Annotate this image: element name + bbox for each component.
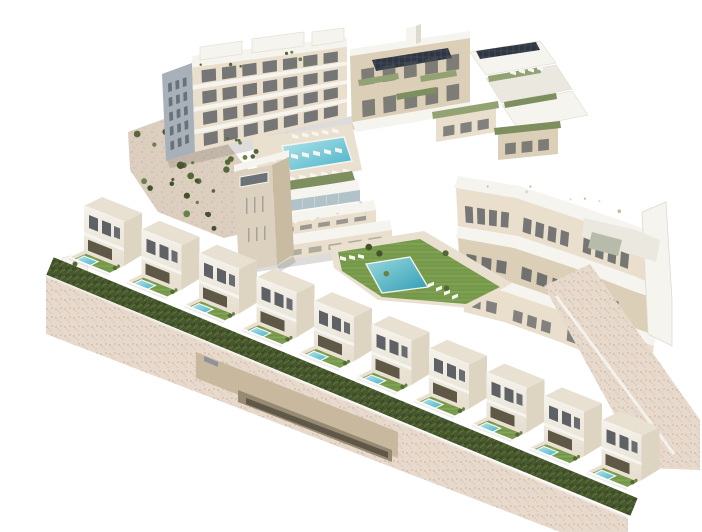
yard-plant-1 [228,313,232,317]
yard-plant-1 [170,290,174,294]
yard-plant-2 [117,265,120,268]
mid-block-windows-item [362,99,375,118]
roof-terrace-plants-item [295,63,297,65]
roof-terrace-plants-item [285,52,288,55]
terrace-furniture-2-item [354,206,357,209]
wing-upper-windows-b-item [560,230,569,247]
yard-plant-2 [462,407,465,410]
glass-mullions-item [302,198,303,208]
townhouse-side-wall [182,237,200,290]
yard-plant-1 [630,480,634,484]
townhouse-side-wall [584,403,602,456]
deck-palms-item [251,154,256,159]
wing-upper-windows-a-item [477,208,485,225]
nw-block-windows-item [202,68,217,82]
mid-block-windows-item [425,57,438,75]
yard-plant-2 [290,336,293,339]
gable-windows-item [169,111,173,121]
hillside-shrubs-item [223,166,229,172]
yard-plant-1 [515,432,519,436]
wing-penthouse-windows-1-item [460,122,471,134]
roof-terrace-plants-item [229,63,232,66]
architectural-render: Aerial 3D rendering of a Mediterranean r… [0,0,702,532]
gable-windows-item [178,137,182,147]
hillside-shrubs-item [170,181,175,186]
gable-windows-item [183,77,187,87]
gable-windows-item [184,120,188,130]
roof-terrace-plants-item [239,65,242,68]
glass-mullions-item [326,195,327,205]
townhouse-side-wall [412,332,430,385]
hillside-shrubs-item [212,189,216,193]
nw-block-windows-item [324,51,338,64]
render-canvas [0,0,702,532]
wing-upper-windows-b-item [535,222,544,239]
wing-upper-windows-a-item [489,210,497,227]
gable-windows-item [177,123,181,133]
hillside-shrubs-item [195,179,199,183]
townhouse-side-wall [527,380,545,433]
hillside-shrubs-item [184,193,190,199]
yard-plant-2 [520,431,523,434]
gable-windows-item [170,140,174,150]
glass-mullions-item [314,197,315,207]
roof-terrace-plants-item [200,63,202,65]
nw-block-windows-item [263,60,278,73]
rooftop-chimney [406,26,416,46]
garden-palms-item [366,244,373,251]
terrace-furniture-2-item [364,212,367,215]
terrace-furniture-item [570,198,572,200]
nw-block-windows-item [222,86,237,100]
terrace-furniture-item [598,200,600,202]
terrace-furniture-item [529,186,531,188]
garden-palms-item [443,250,449,256]
townhouse-side-wall [469,356,487,409]
townhouse-side-wall [354,308,372,361]
terrace-furniture-item [584,198,586,200]
yard-plant-2 [347,360,350,363]
hillside-shrubs-item [212,226,217,231]
townhouse-1 [69,197,142,276]
rooftop-chimney-side [416,24,421,44]
gable-windows-item [176,94,180,104]
wing-upper-windows-a-item [465,206,473,224]
hillside-shrubs-item [152,143,156,147]
gable-windows-item [168,82,172,92]
yard-plant-1 [285,337,289,341]
deck-palms-item [254,149,259,154]
wing-penthouse-windows-2-item [505,142,516,154]
hillside-shrubs-item [196,201,199,204]
yard-plant-1 [573,456,577,460]
wing-penthouse-windows-1-item [478,119,489,131]
nw-block-windows-item [202,89,217,104]
terrace-furniture-2-item [369,207,372,210]
terrace-furniture-2-item [336,213,338,215]
hillside-shrubs-item [171,178,174,181]
garden-palms-item [376,250,382,256]
yard-plant-1 [113,266,117,270]
hillside-shrubs-item [183,210,190,217]
wing-penthouse-windows-2-item [538,139,549,151]
roof-terrace-plants-item [298,57,302,61]
terrace-furniture-2-item [359,201,362,204]
balcony-plants-item [238,139,241,142]
mid-block-windows-item [383,95,396,114]
wing-upper-windows-c-item [620,251,629,269]
wing-upper-windows-a-item [501,212,509,228]
townhouse-side-wall [124,213,142,266]
hillside-shrubs-item [205,212,209,216]
gable-windows-item [170,126,174,136]
yard-plant-2 [635,479,638,482]
townhouse-side-wall [297,284,315,337]
balcony-plants-item [235,139,238,142]
glass-mullions-item [338,193,339,203]
yard-plant-2 [232,312,235,315]
yard-plant-2 [577,455,580,458]
terrace-furniture-2-item [316,217,318,219]
nw-block-windows-item [242,63,257,77]
gable-windows-item [185,134,189,144]
gable-windows-item [169,97,173,107]
wing-upper-windows-b-item [547,226,556,243]
gable-windows-item [184,106,188,116]
hillside-shrubs-item [147,185,153,191]
gable-windows-item [183,92,187,102]
townhouse-side-wall [239,261,257,314]
gable-windows-item [175,80,179,90]
nw-block-windows-item [303,54,317,67]
mid-block-windows-item [446,54,459,72]
terrace-furniture-2-item [310,217,313,220]
yard-plant-1 [343,361,347,365]
wing-upper-windows-b-item [523,218,532,235]
hillside-shrubs-item [141,178,147,184]
wing-mid-windows-a-item [496,260,507,274]
elevator-slit-windows-2-item [264,226,266,240]
gable-windows-item [177,109,181,119]
terrace-furniture-item [525,190,528,193]
townhouse-side-wall [642,427,660,480]
terrace-furniture-item [487,186,489,188]
garden-palms-item [444,285,450,291]
balcony-plants-item [226,137,229,140]
yard-plant-1 [458,409,462,413]
hillside-shrubs-item [243,155,248,160]
yard-plant-2 [175,288,178,291]
elevator-slit-windows-2-item [248,228,250,242]
elevator-slit-windows-1-item [262,196,264,212]
terrace-furniture-item [618,209,622,213]
elevator-slit-windows-1-item [254,197,256,213]
wing-penthouse-windows-2-item [522,141,533,153]
hillside-shrubs-item [134,131,141,138]
hillside-shrubs-item [225,159,231,165]
terrace-furniture-2-item [294,221,297,224]
wing-penthouse-windows-1-item [443,125,454,137]
yard-plant-1 [400,385,404,389]
elevator-slit-windows-2-item [256,227,258,241]
hillside-shrubs-item [187,173,194,180]
yard-plant-2 [405,384,408,387]
roof-terrace-plants-item [290,51,293,54]
garden-palms-item [384,271,390,277]
nw-block-windows-item [222,66,237,80]
roof-terrace-plants-item [304,62,307,65]
mid-block-windows-item [404,61,417,79]
mid-block-windows-item [447,84,460,102]
elevator-slit-windows-1-item [246,198,248,214]
